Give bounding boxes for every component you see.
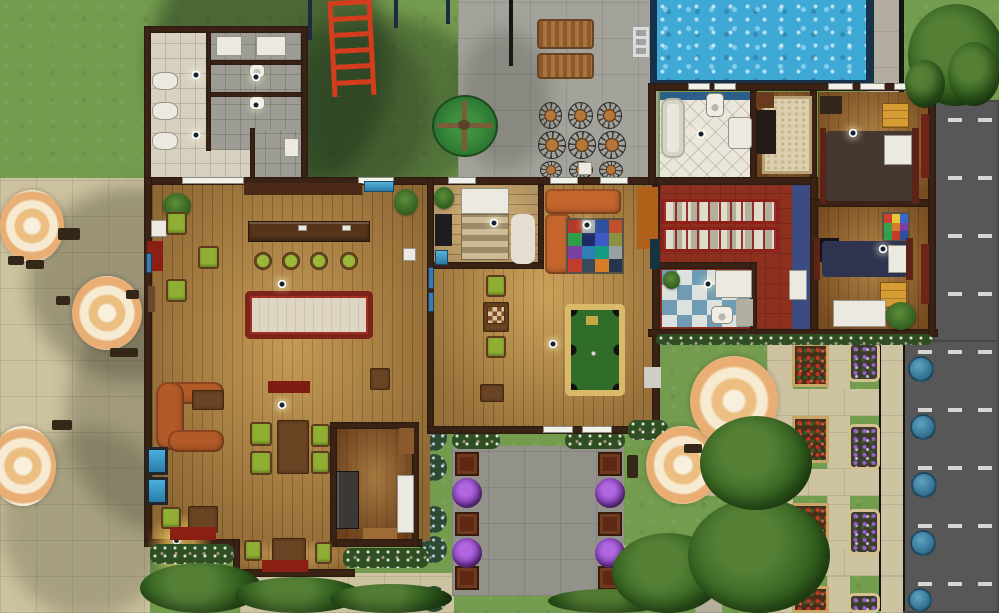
- bistro-set[interactable]: [597, 102, 622, 129]
- door-mat: [644, 367, 661, 388]
- flower-hedge: [150, 544, 234, 564]
- dining-chair[interactable]: [486, 275, 506, 297]
- bar-counter[interactable]: [248, 221, 370, 242]
- pedestal-sink[interactable]: [728, 117, 752, 149]
- bar-register: [298, 225, 307, 231]
- dining-chair[interactable]: [244, 540, 262, 561]
- changing-counter[interactable]: [216, 36, 242, 56]
- potted-plant[interactable]: [394, 189, 418, 215]
- hall-cabinet[interactable]: [756, 92, 774, 108]
- lounge-chair[interactable]: [537, 19, 594, 49]
- kitchen-mat: [363, 528, 397, 539]
- dining-chair[interactable]: [250, 422, 272, 446]
- patchwork-rug: [566, 218, 624, 274]
- tree-canopy: [700, 416, 812, 510]
- fence-garden: [879, 343, 881, 611]
- sofa-orange[interactable]: [545, 189, 621, 214]
- dining-chair[interactable]: [311, 451, 330, 474]
- side-table[interactable]: [370, 368, 390, 390]
- bistro-set[interactable]: [539, 102, 562, 129]
- bed-frame: [912, 128, 919, 204]
- planter-box[interactable]: [455, 512, 479, 536]
- restroom-wall: [144, 26, 151, 185]
- curb-bin[interactable]: [911, 472, 937, 498]
- pool-edge: [650, 0, 657, 89]
- kitchen-wall: [330, 539, 422, 547]
- pool-edge: [866, 0, 874, 89]
- curb-bin[interactable]: [908, 356, 934, 382]
- patio-chair[interactable]: [52, 420, 72, 430]
- window-drape: [921, 244, 929, 304]
- ceiling-lamp[interactable]: [848, 128, 858, 138]
- window-sill: [448, 177, 476, 184]
- window-sill: [550, 177, 578, 184]
- shag-rug: [511, 214, 535, 264]
- flower-hedge: [656, 334, 932, 345]
- tree-canopy: [330, 584, 452, 613]
- patio-chair[interactable]: [26, 260, 44, 269]
- bistro-set[interactable]: [568, 102, 593, 129]
- rug-cell: [900, 223, 908, 232]
- window-sill: [600, 177, 628, 184]
- wall-painting: [146, 253, 152, 273]
- rug-cell: [595, 233, 609, 246]
- dining-chair[interactable]: [250, 451, 272, 475]
- dining-chair[interactable]: [166, 279, 187, 302]
- dining-chair[interactable]: [198, 246, 219, 269]
- lane-dashes: [918, 582, 992, 586]
- pool-table-logo: [586, 316, 598, 325]
- flowerbed-purple: [848, 509, 880, 555]
- sink[interactable]: [152, 72, 178, 90]
- bunk-bed[interactable]: [661, 199, 779, 224]
- red-bench[interactable]: [262, 560, 308, 572]
- ceiling-lamp[interactable]: [191, 130, 201, 140]
- rug-cell: [609, 246, 623, 259]
- window-sill: [582, 426, 612, 433]
- curb-bin[interactable]: [910, 530, 936, 556]
- bed-pillow: [461, 188, 509, 214]
- bar-stool[interactable]: [340, 252, 358, 270]
- red-bench[interactable]: [268, 381, 310, 393]
- merry-go-round-hub: [458, 120, 470, 130]
- patio-chair[interactable]: [126, 290, 139, 299]
- flower-hedge: [565, 432, 625, 449]
- coffee-table[interactable]: [192, 390, 224, 410]
- vending-machine[interactable]: [146, 447, 168, 475]
- rug-cell: [568, 246, 582, 259]
- monkey-bars[interactable]: [328, 0, 377, 97]
- small-sink[interactable]: [435, 250, 448, 265]
- wall-heater[interactable]: [650, 239, 660, 269]
- purple-bush: [595, 478, 625, 508]
- lane-dashes: [948, 234, 992, 238]
- window-sill: [182, 177, 244, 184]
- dining-chair[interactable]: [166, 212, 187, 235]
- pool-ladder[interactable]: [633, 27, 649, 57]
- lane-dashes: [918, 408, 992, 412]
- bar-stool[interactable]: [254, 252, 272, 270]
- ceiling-lamp[interactable]: [696, 129, 706, 139]
- planter-box[interactable]: [455, 566, 479, 590]
- shower-stall[interactable]: [736, 299, 753, 326]
- wall-poster: [789, 270, 807, 300]
- bathtub[interactable]: [661, 98, 685, 158]
- sink-counter[interactable]: [715, 270, 752, 298]
- pool-water[interactable]: [654, 0, 868, 82]
- patio-chair[interactable]: [684, 444, 702, 453]
- swing-pole: [394, 0, 398, 28]
- bistro-set[interactable]: [538, 131, 566, 159]
- flower-hedge: [343, 548, 429, 568]
- wall-painting: [148, 286, 155, 312]
- flowerbed-purple: [848, 593, 880, 613]
- rug-cell: [582, 233, 596, 246]
- purple-bush: [452, 478, 482, 508]
- flowerbed-purple: [848, 342, 880, 382]
- swing-pole: [446, 0, 450, 24]
- sectional-sofa[interactable]: [168, 430, 224, 452]
- window-sill: [860, 83, 885, 90]
- red-bench[interactable]: [170, 527, 216, 540]
- rug-cell: [568, 220, 582, 233]
- ceiling-lamp[interactable]: [548, 339, 558, 349]
- swing-pole: [308, 0, 312, 40]
- stall-divider: [211, 60, 303, 65]
- kitchen-counter[interactable]: [397, 475, 414, 533]
- ceiling-lamp[interactable]: [191, 70, 201, 80]
- master-wardrobe[interactable]: [820, 96, 842, 114]
- ceiling-lamp[interactable]: [251, 72, 261, 82]
- cue-ball: [591, 351, 596, 356]
- rug-cell: [892, 214, 900, 223]
- shuffleboard-table[interactable]: [245, 291, 373, 339]
- wing-wall-right: [928, 83, 936, 337]
- chess-board[interactable]: [487, 306, 505, 324]
- rug-cell: [900, 214, 908, 223]
- toilet[interactable]: [711, 306, 733, 324]
- potted-plant[interactable]: [663, 271, 680, 289]
- wall-painting: [428, 267, 434, 289]
- ceiling-lamp[interactable]: [878, 244, 888, 254]
- flowerbed-red: [792, 343, 829, 387]
- bed-blanket[interactable]: [461, 214, 509, 260]
- rug-cell: [568, 233, 582, 246]
- aquarium[interactable]: [364, 181, 394, 192]
- sink[interactable]: [152, 132, 178, 150]
- rug-cell: [595, 259, 609, 272]
- sims-lot-top-down-view: [0, 0, 999, 613]
- bed-frame: [814, 238, 820, 280]
- lane-dashes: [948, 292, 992, 296]
- dining-chair[interactable]: [315, 542, 332, 564]
- patio-umbrella[interactable]: [0, 190, 64, 262]
- vending-machine[interactable]: [146, 477, 168, 505]
- rug-cell: [884, 214, 892, 223]
- patio-chair[interactable]: [8, 256, 24, 265]
- bed-pillow: [884, 135, 912, 165]
- bath2-wall: [656, 262, 756, 269]
- rug-cell: [568, 259, 582, 272]
- fence-garden: [903, 343, 905, 611]
- flowerbed-purple: [848, 424, 880, 470]
- dropped-paper: [578, 162, 592, 175]
- small-table[interactable]: [480, 384, 504, 402]
- tree-canopy: [905, 60, 945, 108]
- lane-dashes: [948, 118, 992, 122]
- dining-table[interactable]: [277, 420, 309, 474]
- toilet[interactable]: [706, 93, 724, 117]
- flower-hedge: [452, 432, 500, 449]
- patio-umbrella[interactable]: [72, 276, 142, 350]
- ceiling-lamp[interactable]: [277, 279, 287, 289]
- bed-frame: [906, 238, 913, 280]
- tree-canopy: [948, 42, 999, 106]
- patio-chair[interactable]: [58, 228, 80, 240]
- bistro-set[interactable]: [568, 131, 596, 159]
- sink[interactable]: [152, 102, 178, 120]
- trash-bin[interactable]: [403, 248, 416, 261]
- planter-box[interactable]: [598, 452, 622, 476]
- purple-bush: [452, 538, 482, 568]
- back-bar-shelf[interactable]: [244, 183, 362, 195]
- wall-painting: [428, 292, 434, 312]
- rug-cell: [892, 231, 900, 240]
- ceiling-lamp[interactable]: [251, 100, 261, 110]
- fridge[interactable]: [336, 471, 359, 529]
- window-sill: [688, 83, 710, 90]
- curb-bin[interactable]: [910, 414, 936, 440]
- lane-dashes: [948, 176, 992, 180]
- white-chair[interactable]: [151, 220, 167, 237]
- curb-bin[interactable]: [908, 588, 932, 612]
- ceiling-lamp[interactable]: [703, 279, 713, 289]
- rug-cell: [582, 259, 596, 272]
- rug-cell: [595, 220, 609, 233]
- yellow-dresser[interactable]: [882, 103, 909, 128]
- wing-wall-left: [648, 83, 656, 185]
- dining-chair[interactable]: [311, 424, 330, 447]
- restroom-wall: [144, 26, 308, 33]
- ceiling-lamp[interactable]: [582, 220, 592, 230]
- bunkroom-wall-top: [656, 177, 818, 185]
- tree-canopy: [688, 498, 830, 613]
- ceiling-lamp[interactable]: [489, 218, 499, 228]
- rug-cell: [892, 223, 900, 232]
- window-sill: [714, 83, 736, 90]
- rug-cell: [609, 233, 623, 246]
- potted-plant[interactable]: [886, 302, 916, 330]
- urinal[interactable]: [284, 138, 299, 157]
- dining-chair[interactable]: [161, 507, 181, 529]
- lane-dashes: [918, 466, 992, 470]
- planter-box[interactable]: [598, 512, 622, 536]
- bar-stool[interactable]: [310, 252, 328, 270]
- patio-chair[interactable]: [56, 296, 70, 305]
- tv-set[interactable]: [435, 214, 452, 246]
- bar-stool[interactable]: [282, 252, 300, 270]
- rug-cell: [884, 223, 892, 232]
- bistro-set[interactable]: [598, 131, 626, 159]
- rug-cell: [595, 246, 609, 259]
- bar-register: [342, 225, 351, 231]
- kitchen-cabinet[interactable]: [399, 428, 414, 454]
- restroom-wall: [301, 26, 308, 185]
- planter-box[interactable]: [455, 452, 479, 476]
- park-bench[interactable]: [627, 455, 638, 478]
- rug-cell: [609, 220, 623, 233]
- stall-divider: [211, 92, 303, 97]
- rug-cell: [609, 259, 623, 272]
- dining-chair[interactable]: [486, 336, 506, 358]
- potted-plant[interactable]: [434, 187, 454, 209]
- rug-cell: [884, 231, 892, 240]
- patio-chair[interactable]: [110, 348, 138, 357]
- lane-dashes: [918, 524, 992, 528]
- stall-divider: [250, 128, 255, 178]
- lounge-chair[interactable]: [537, 53, 594, 79]
- ceiling-lamp[interactable]: [277, 400, 287, 410]
- window-drape: [921, 114, 929, 178]
- bed-pillow: [888, 245, 908, 273]
- road-upper: [933, 100, 999, 345]
- rug-cell: [582, 246, 596, 259]
- dark-wardrobe[interactable]: [756, 110, 776, 154]
- bunk-bed[interactable]: [661, 227, 779, 252]
- window-sill: [828, 83, 853, 90]
- white-dresser[interactable]: [833, 300, 886, 327]
- bedroom1-wall: [538, 185, 544, 269]
- window-sill: [543, 426, 573, 433]
- lane-dashes: [918, 350, 992, 354]
- changing-counter[interactable]: [256, 36, 286, 56]
